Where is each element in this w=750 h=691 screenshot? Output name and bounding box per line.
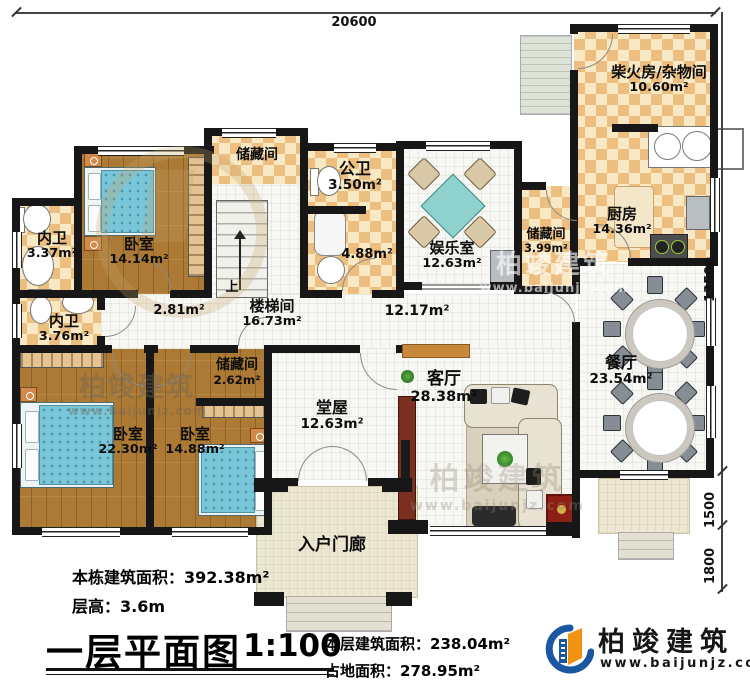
window [620, 470, 668, 480]
wall [266, 345, 360, 353]
porch-post [386, 592, 412, 606]
room-area: 16.73m² [228, 315, 316, 329]
sliding-opening [422, 284, 490, 286]
room-label-bedroom-mid: 卧室 14.88m² [152, 426, 238, 457]
room-label-storage-right: 储藏间 3.99m² [514, 228, 578, 255]
dimension-right-label: 13500 [703, 222, 718, 302]
room-name: 楼梯间 [249, 297, 294, 315]
wall [12, 468, 20, 535]
porch-post [254, 478, 288, 492]
room-name: 卧室 [180, 425, 210, 443]
wall [300, 290, 342, 298]
room-label-entertainment: 娱乐室 12.63m² [402, 240, 502, 271]
wall [570, 24, 578, 34]
logo-url: www.baijunjz.com [600, 656, 750, 671]
dimension-right-label: 1800 [703, 538, 718, 584]
bed-pillow [25, 411, 39, 443]
plan-title: 一层平面图 [46, 622, 241, 676]
wall [706, 438, 714, 478]
room-label-public-bath: 公卫 3.50m² [322, 160, 388, 193]
room-name: 客厅 [427, 369, 461, 389]
window [618, 24, 690, 34]
dining-table [626, 394, 694, 462]
dining-porch-steps [618, 532, 674, 560]
window [426, 141, 490, 151]
wall [706, 346, 714, 386]
wall [12, 345, 105, 353]
porch-post [254, 592, 284, 606]
wall [572, 322, 580, 538]
porch-post [382, 478, 412, 492]
wall [396, 282, 422, 290]
room-area: 2.81m² [153, 303, 204, 318]
wall [105, 345, 112, 353]
room-area: 2.62m² [198, 374, 276, 387]
room-area: 3.76m² [28, 330, 100, 344]
sink-basin [654, 133, 681, 160]
chair [647, 276, 663, 294]
floor-area: 本层建筑面积：238.04m² [325, 633, 510, 654]
room-label-kitchen: 厨房 14.36m² [572, 206, 672, 237]
room-label-bath-nw1: 内卫 3.37m² [20, 230, 84, 261]
total-building-area: 本栋建筑面积：392.38m² [72, 564, 269, 588]
wall [612, 124, 658, 132]
entry-porch-steps [286, 596, 392, 632]
sofa-cushion [526, 490, 543, 509]
room-label-dining: 餐厅 23.54m² [586, 354, 656, 387]
logo-brand: 柏竣建筑 [598, 620, 734, 659]
wall [12, 268, 20, 304]
room-name: 娱乐室 [429, 239, 474, 257]
wall [308, 206, 366, 214]
room-label-storage-top: 储藏间 [214, 148, 300, 164]
sofa-cushion [472, 506, 516, 526]
nightstand [20, 387, 37, 402]
top-terrace [520, 35, 572, 115]
wall [12, 198, 82, 206]
wall [388, 520, 428, 534]
wall [12, 527, 42, 535]
wall [372, 290, 404, 298]
plant [497, 451, 513, 467]
land-area: 占地面积：278.95m² [325, 660, 480, 681]
sofa-cushion [511, 387, 531, 405]
room-area: 12.63m² [402, 257, 502, 271]
window [334, 143, 376, 153]
room-area: 3.37m² [20, 247, 84, 261]
room-name: 入户门廊 [298, 535, 366, 555]
wall [120, 527, 172, 535]
room-area: 14.88m² [152, 443, 238, 457]
dimension-top-label: 20600 [322, 15, 386, 30]
bed-pillow [88, 173, 101, 200]
window [430, 526, 546, 536]
room-name: 卧室 [124, 235, 154, 253]
area-label-bath: 4.88m² [338, 248, 396, 263]
window [706, 386, 716, 438]
room-name: 储藏间 [236, 147, 278, 163]
room-label-bedroom-top: 卧室 14.14m² [96, 236, 182, 267]
room-name: 公卫 [339, 159, 371, 178]
dimension-line-right [721, 12, 723, 592]
room-label-storage-small: 储藏间 2.62m² [198, 358, 276, 387]
area-label-hall-right: 12.17m² [384, 304, 450, 320]
logo-icon [544, 620, 594, 682]
room-label-living: 客厅 28.38m² [399, 370, 489, 405]
dimension-line-top [16, 12, 716, 14]
room-name: 储藏间 [216, 357, 258, 373]
room-area: 12.17m² [384, 303, 449, 319]
tv [401, 440, 410, 482]
wall [710, 24, 718, 178]
chair [603, 321, 621, 337]
wall [572, 262, 580, 292]
room-name: 储藏间 [526, 227, 565, 242]
wall [300, 143, 334, 151]
dimension-right-label: 1500 [703, 482, 718, 528]
room-area: 28.38m² [399, 389, 489, 405]
room-name: 厨房 [607, 205, 637, 223]
window [172, 527, 248, 537]
wall [12, 206, 20, 232]
window [12, 304, 22, 338]
chair [603, 415, 621, 431]
wall [300, 128, 308, 298]
room-name: 卧室 [113, 425, 143, 443]
wall [190, 345, 238, 353]
sliding-opening [422, 288, 490, 290]
coffee-table [482, 434, 528, 484]
room-name: 内卫 [49, 312, 79, 330]
room-area: 3.50m² [322, 178, 388, 193]
window [42, 527, 120, 537]
bed-pillow [25, 449, 39, 481]
sink-basin [682, 131, 712, 161]
room-area: 4.88m² [341, 247, 392, 262]
sofa-cushion [526, 468, 541, 485]
room-label-porch: 入户门廊 [272, 536, 392, 555]
room-area: 12.63m² [287, 417, 377, 432]
stove [650, 234, 688, 260]
room-label-bath-nw2: 内卫 3.76m² [28, 313, 100, 344]
room-name: 柴火房/杂物间 [611, 63, 706, 81]
room-name: 内卫 [37, 229, 67, 247]
wall [196, 398, 272, 406]
window [12, 424, 22, 468]
lintel-beam [402, 344, 470, 358]
room-area: 3.99m² [514, 243, 578, 255]
wall [576, 470, 620, 478]
wall [12, 290, 78, 298]
wall [248, 527, 272, 535]
room-label-firewood: 柴火房/杂物间 10.60m² [584, 64, 734, 95]
room-name: 餐厅 [605, 353, 637, 372]
sofa-cushion [491, 387, 510, 404]
wall [74, 146, 82, 298]
room-name: 堂屋 [316, 398, 348, 417]
room-label-tangwu: 堂屋 12.63m² [287, 399, 377, 432]
wall [97, 298, 105, 310]
room-label-stairwell: 楼梯间 16.73m² [228, 298, 316, 329]
room-area: 14.36m² [572, 223, 672, 237]
floor-height: 层高：3.6m [72, 593, 165, 617]
floor-plan-page: { "dimensions": { "top": "20600", "right… [0, 0, 750, 691]
company-logo: 柏竣建筑 www.baijunjz.com [544, 618, 744, 682]
room-area: 10.60m² [584, 81, 734, 95]
room-area: 14.14m² [96, 253, 182, 267]
floor-dining-porch [598, 478, 690, 534]
window [222, 128, 276, 138]
area-label-hall-left: 2.81m² [150, 304, 208, 319]
room-area: 23.54m² [586, 372, 656, 387]
stair-up-label: 上 [222, 281, 242, 296]
window [706, 298, 716, 346]
